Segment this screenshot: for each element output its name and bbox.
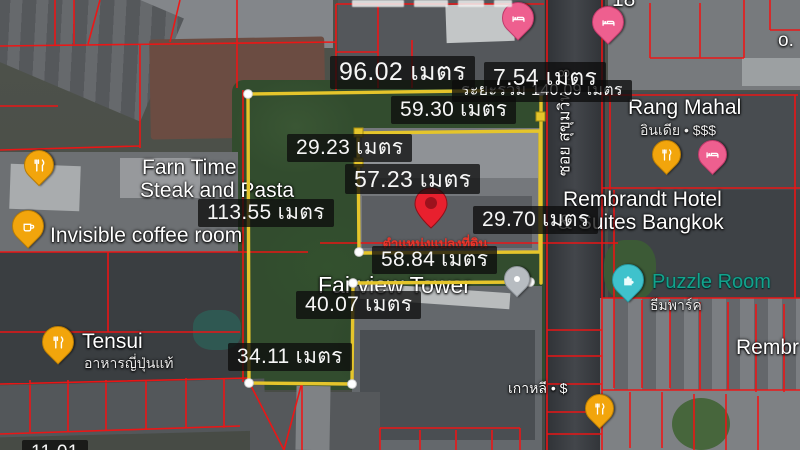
- measurement-label: 29.70 เมตร: [473, 206, 598, 234]
- bed-icon: [699, 141, 726, 168]
- measurement-label: 58.84 เมตร: [372, 246, 497, 274]
- measurement-label: 113.55 เมตร: [198, 199, 334, 227]
- fork-knife-icon: [25, 151, 53, 179]
- fork-knife-icon: [43, 327, 73, 357]
- poi-clipped-top: 18: [612, 0, 635, 12]
- fork-knife-icon: [586, 395, 613, 422]
- dot-icon: [505, 267, 529, 291]
- clipped-top-text-fragment: [494, 0, 512, 7]
- measurement-label-clipped: 11.01: [22, 440, 88, 450]
- measurement-label: 57.23 เมตร: [345, 164, 480, 194]
- coffee-cup-icon: [13, 211, 43, 241]
- measurement-label: 7.54 เมตร: [484, 62, 606, 92]
- puzzle-piece-icon: [613, 265, 643, 295]
- satellite-map[interactable]: ซอย สุขุมวิท 18 Farn Time Steak and Past…: [0, 0, 800, 450]
- measure-node[interactable]: [349, 279, 358, 288]
- clipped-top-text-fragment: [414, 0, 448, 7]
- clipped-top-text-fragment: [458, 0, 484, 7]
- fork-knife-icon: [653, 141, 680, 168]
- measure-node[interactable]: [244, 90, 253, 99]
- measure-node[interactable]: [245, 379, 254, 388]
- measurement-label: 34.11 เมตร: [228, 343, 352, 371]
- measurement-label: 29.23 เมตร: [287, 134, 412, 162]
- measure-node[interactable]: [536, 112, 545, 121]
- measure-node[interactable]: [348, 380, 357, 389]
- measurement-label: 59.30 เมตร: [391, 96, 516, 124]
- bed-icon: [503, 3, 533, 33]
- measurement-label: 96.02 เมตร: [330, 56, 475, 89]
- clipped-top-text-fragment: [352, 0, 404, 7]
- measurement-label: 40.07 เมตร: [296, 291, 421, 319]
